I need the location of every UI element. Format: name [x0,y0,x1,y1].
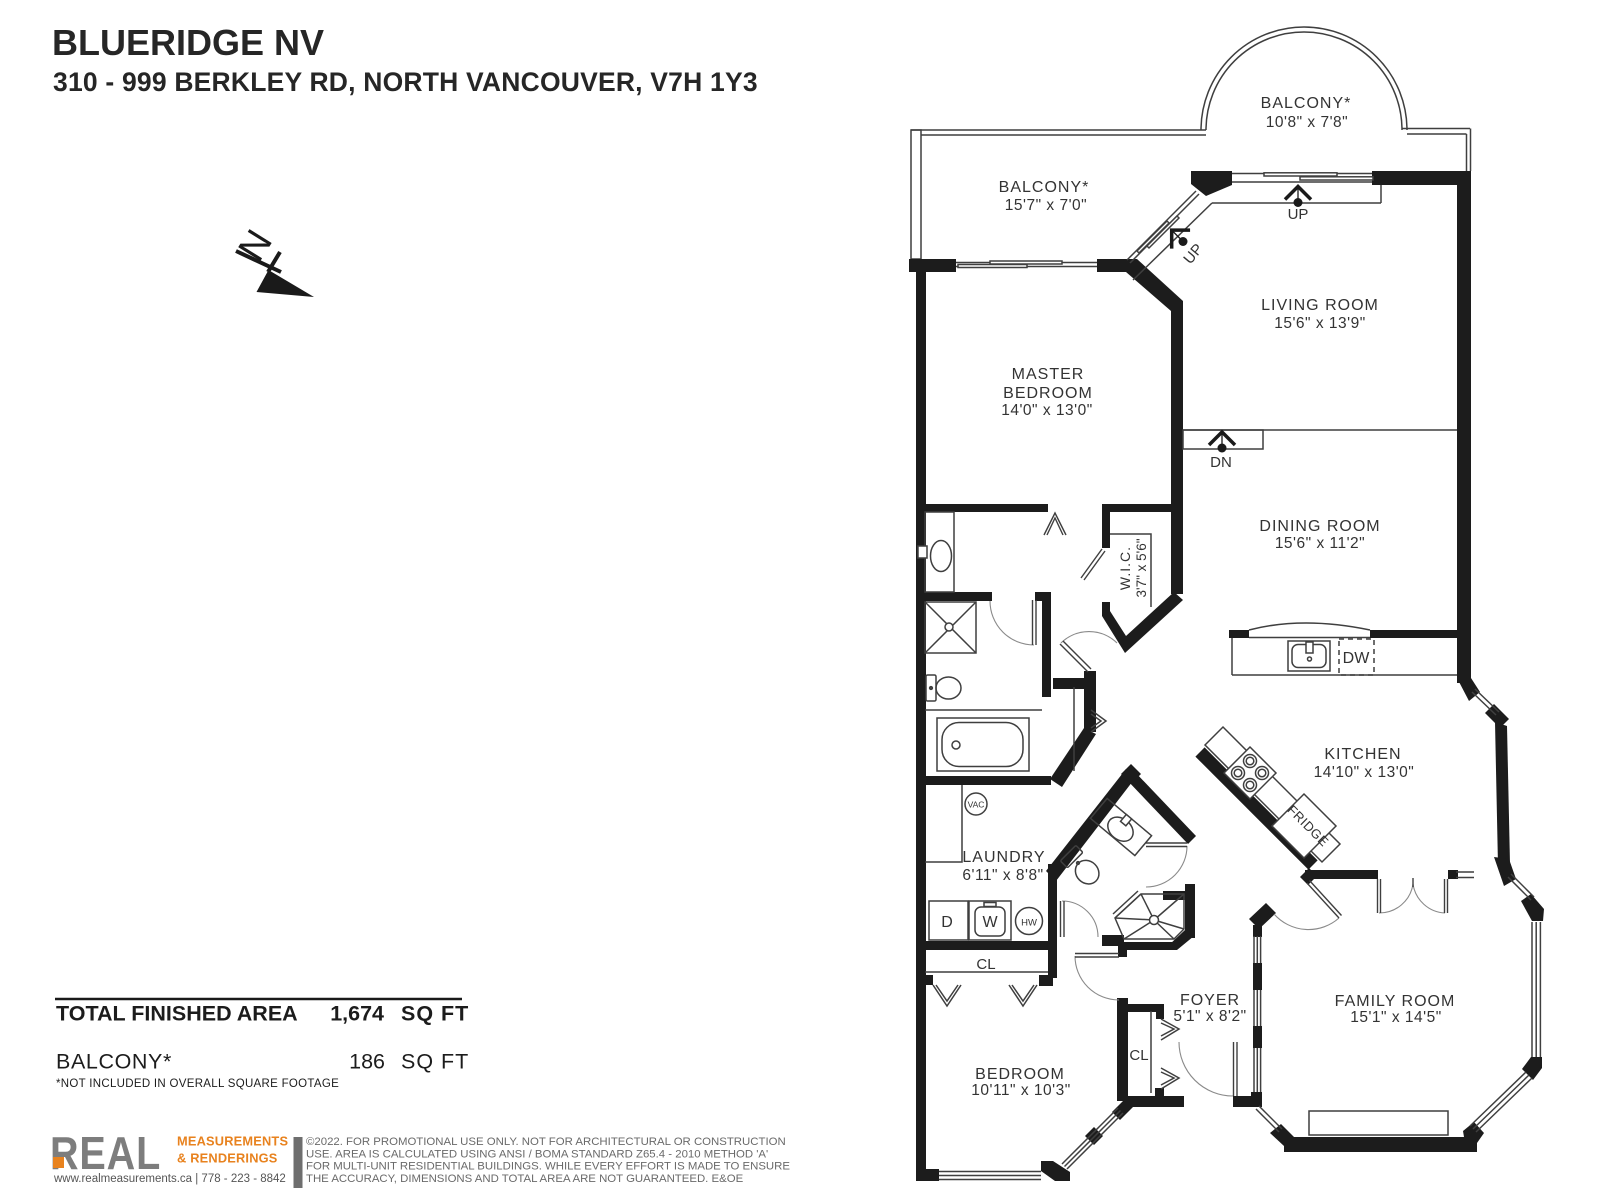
svg-text:THE ACCURACY, DIMENSIONS AND T: THE ACCURACY, DIMENSIONS AND TOTAL AREA … [306,1173,744,1185]
svg-text:& RENDERINGS: & RENDERINGS [177,1151,278,1166]
svg-text:©2022. FOR PROMOTIONAL USE ONL: ©2022. FOR PROMOTIONAL USE ONLY. NOT FOR… [306,1136,786,1148]
svg-text:186: 186 [349,1050,385,1074]
svg-text:BALCONY*: BALCONY* [56,1050,172,1074]
svg-text:D: D [941,914,953,931]
svg-text:5'1" x 8'2": 5'1" x 8'2" [1173,1008,1246,1025]
svg-text:BEDROOM: BEDROOM [1003,385,1093,402]
svg-text:SQ FT: SQ FT [401,1050,469,1074]
svg-text:DN: DN [1210,454,1232,471]
svg-text:*NOT INCLUDED IN OVERALL SQUAR: *NOT INCLUDED IN OVERALL SQUARE FOOTAGE [56,1078,339,1090]
svg-text:3'7" x 5'6": 3'7" x 5'6" [1134,538,1149,597]
svg-text:LAUNDRY: LAUNDRY [962,849,1045,866]
svg-text:BEDROOM: BEDROOM [975,1066,1065,1083]
svg-text:W: W [982,914,998,931]
svg-text:6'11" x 8'8": 6'11" x 8'8" [962,867,1043,884]
svg-text:310 - 999 BERKLEY RD, NORTH VA: 310 - 999 BERKLEY RD, NORTH VANCOUVER, V… [53,67,758,97]
svg-text:CL: CL [976,956,995,973]
svg-text:10'8" x 7'8": 10'8" x 7'8" [1266,114,1348,131]
svg-text:BLUERIDGE NV: BLUERIDGE NV [52,22,324,63]
svg-text:BALCONY*: BALCONY* [999,179,1090,196]
svg-text:W.I.C.: W.I.C. [1117,546,1133,590]
svg-text:HW: HW [1021,918,1037,929]
svg-text:DINING ROOM: DINING ROOM [1259,518,1380,535]
svg-text:CL: CL [1129,1047,1148,1064]
svg-text:FAMILY ROOM: FAMILY ROOM [1335,993,1456,1010]
svg-text:REAL: REAL [50,1128,161,1179]
svg-text:FOYER: FOYER [1180,992,1240,1009]
svg-text:DW: DW [1343,650,1371,667]
svg-text:KITCHEN: KITCHEN [1324,746,1401,763]
svg-text:www.realmeasurements.ca | 778: www.realmeasurements.ca | 778 - 223 - 88… [53,1173,286,1185]
svg-text:15'6" x 13'9": 15'6" x 13'9" [1274,315,1366,332]
svg-text:14'0" x 13'0": 14'0" x 13'0" [1001,402,1093,419]
svg-text:10'11" x 10'3": 10'11" x 10'3" [971,1082,1070,1099]
svg-text:UP: UP [1288,206,1309,223]
svg-text:SQ FT: SQ FT [401,1002,469,1026]
svg-text:BALCONY*: BALCONY* [1261,95,1352,112]
svg-text:15'6" x 11'2": 15'6" x 11'2" [1275,535,1365,552]
svg-text:15'1" x 14'5": 15'1" x 14'5" [1350,1009,1442,1026]
svg-text:FOR MULTI-UNIT RESIDENTIAL BUI: FOR MULTI-UNIT RESIDENTIAL BUILDINGS. WH… [306,1161,790,1173]
svg-text:LIVING ROOM: LIVING ROOM [1261,297,1379,314]
svg-text:MEASUREMENTS: MEASUREMENTS [177,1134,288,1149]
svg-text:TOTAL FINISHED AREA: TOTAL FINISHED AREA [56,1002,298,1026]
svg-text:1,674: 1,674 [330,1002,384,1026]
svg-text:USE. AREA IS CALCULATED USING: USE. AREA IS CALCULATED USING ANSI / BOM… [306,1148,768,1160]
svg-text:14'10" x 13'0": 14'10" x 13'0" [1314,764,1415,781]
svg-text:MASTER: MASTER [1012,366,1085,383]
svg-text:VAC: VAC [968,800,985,810]
svg-text:15'7" x 7'0": 15'7" x 7'0" [1005,197,1087,214]
